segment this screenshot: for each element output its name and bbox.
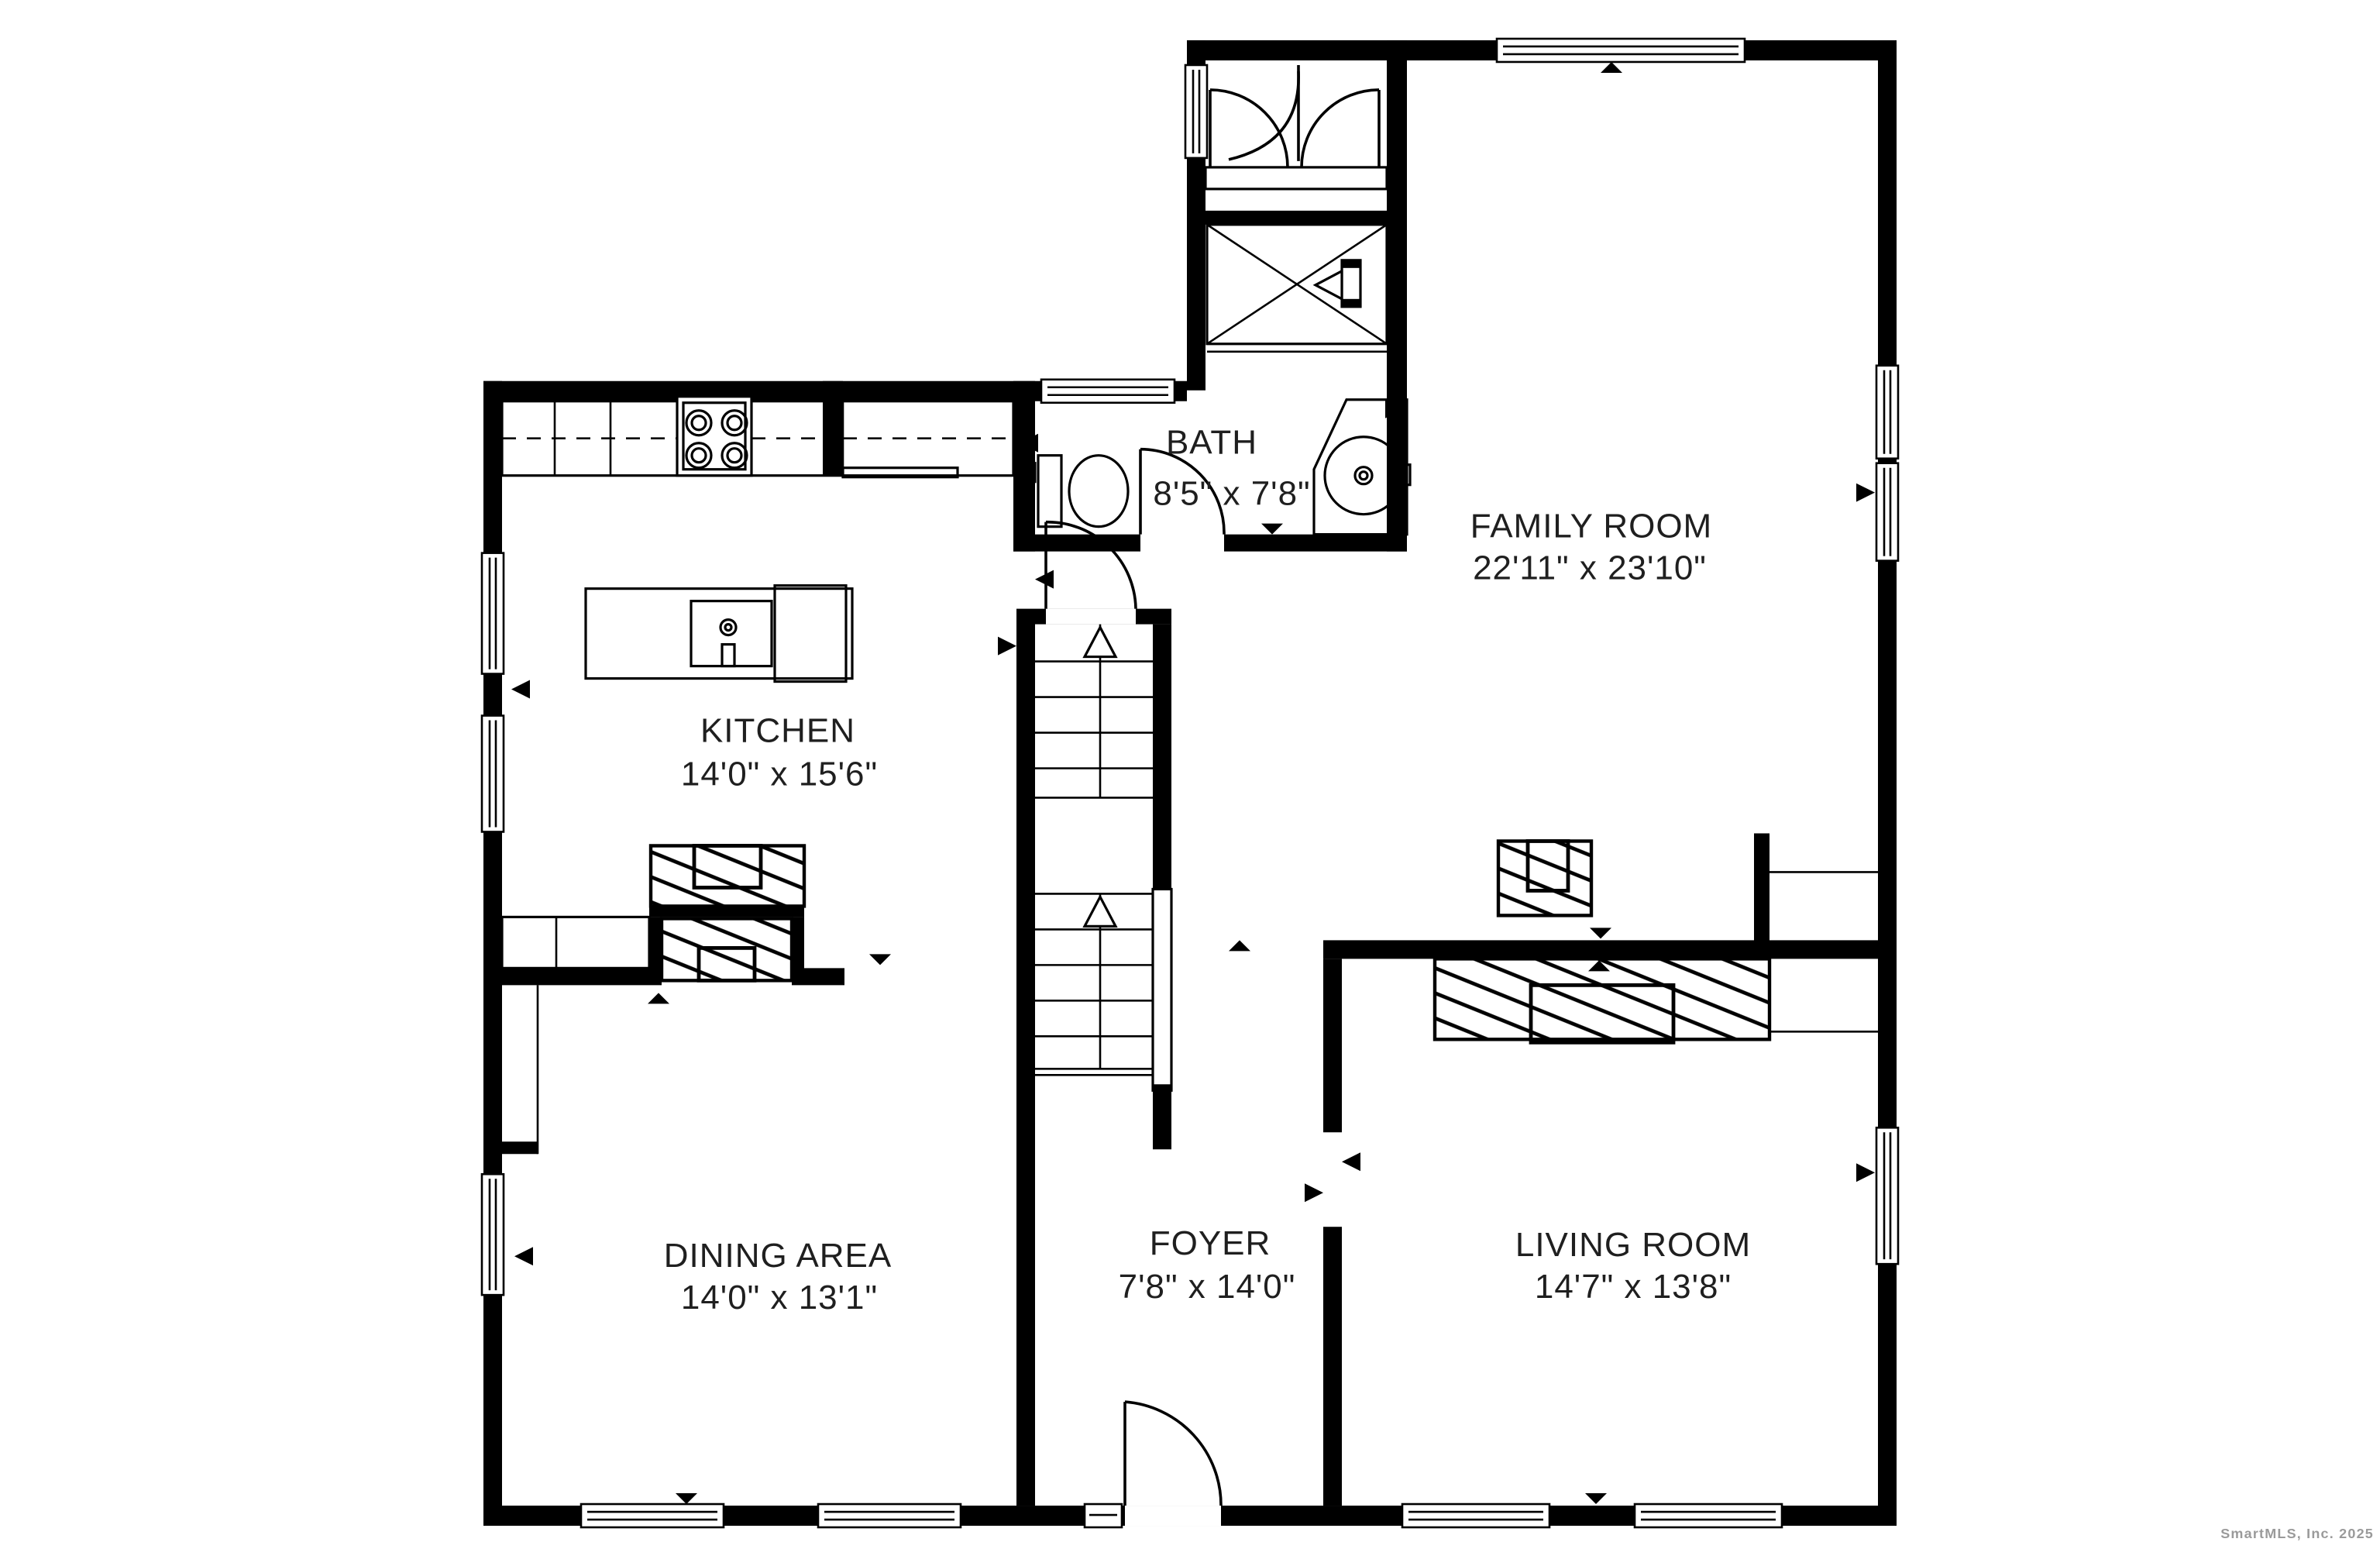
shower-icon <box>1207 225 1387 352</box>
dining-area-dimensions: 14'0" x 13'1" <box>681 1279 878 1317</box>
family-fireplace-icon <box>1498 841 1591 915</box>
stairs-railing <box>1153 889 1171 1090</box>
wall-foyer-west <box>1016 609 1035 1506</box>
kitchen-counter-south <box>502 917 649 968</box>
marker-left-icon <box>514 1247 533 1265</box>
stove-icon <box>677 397 751 476</box>
marker-up-icon <box>648 993 669 1003</box>
stairs-up-arrow-icon <box>1085 897 1116 926</box>
wall-bath-bottom-right <box>1224 535 1407 552</box>
marker-down-icon <box>1261 524 1283 535</box>
dining-fireplace-icon <box>662 918 792 980</box>
wall-kitchen-dining-west <box>502 968 649 985</box>
marker-right-icon <box>998 637 1016 656</box>
kitchen-island <box>586 586 852 682</box>
wall-fireplace-recess-left <box>649 917 662 985</box>
wall-stair-right-lower <box>1153 1084 1171 1149</box>
wall-bath-bottom-left <box>1013 535 1140 552</box>
window-foyer-sidelight <box>1085 1504 1122 1527</box>
front-door <box>1125 1402 1221 1526</box>
foyer-dimensions: 7'8" x 14'0" <box>1119 1268 1296 1306</box>
dining-area-label: DINING AREA <box>664 1237 892 1275</box>
wall-foyer-living-lower <box>1323 1227 1342 1506</box>
marker-down-icon <box>869 954 891 965</box>
window-family-right-1 <box>1876 366 1898 459</box>
living-fireplace-icon <box>1435 959 1770 1042</box>
stairs-lower-flight <box>1035 889 1171 1090</box>
marker-down-icon <box>1590 928 1611 938</box>
living-room-label: LIVING ROOM <box>1515 1226 1751 1264</box>
floor-plan-canvas: BATH 8'5" x 7'8" FAMILY ROOM 22'11" x 23… <box>0 0 2380 1549</box>
window-kitchen-left-2 <box>482 716 504 832</box>
bath-dimensions: 8'5" x 7'8" <box>1153 475 1310 513</box>
closet-shelf <box>1205 167 1387 189</box>
window-kitchen-left-1 <box>482 553 504 674</box>
bath-label: BATH <box>1166 424 1257 462</box>
wall-kitchen-stub <box>823 381 843 476</box>
wall-stair-right-upper <box>1153 625 1171 890</box>
wall-family-stub <box>1754 833 1770 943</box>
kitchen-dimensions: 14'0" x 15'6" <box>681 756 878 793</box>
closet-double-doors <box>1205 65 1387 189</box>
stairs-up-arrow-icon <box>1085 628 1116 657</box>
wall-bath-column-right <box>1387 40 1407 552</box>
foyer-label: FOYER <box>1150 1224 1271 1262</box>
window-dining-left <box>482 1174 504 1295</box>
living-room-dimensions: 14'7" x 13'8" <box>1535 1268 1732 1306</box>
window-family-top <box>1497 39 1745 62</box>
wall-fireplace-recess-right <box>792 917 804 985</box>
marker-left-icon <box>1035 570 1054 589</box>
wall-family-living <box>1323 940 1897 959</box>
marker-left-icon <box>1342 1152 1360 1171</box>
marker-up-icon <box>1229 940 1250 951</box>
kitchen-fireplace-icon <box>651 845 804 906</box>
marker-down-icon <box>1585 1493 1607 1504</box>
window-closet-left <box>1185 65 1207 158</box>
window-living-bottom-1 <box>1402 1504 1549 1527</box>
floor-plan: BATH 8'5" x 7'8" FAMILY ROOM 22'11" x 23… <box>0 0 2380 1549</box>
marker-down-icon <box>676 1493 697 1504</box>
wall-kitchen-dining-east <box>804 968 844 985</box>
window-family-right-2 <box>1876 463 1898 561</box>
marker-right-icon <box>1305 1183 1323 1202</box>
island-dishwasher <box>775 586 846 682</box>
wall-closet-divider <box>1187 211 1387 225</box>
stairs-upper-flight <box>1035 625 1153 798</box>
watermark: SmartMLS, Inc. 2025 <box>2220 1526 2374 1541</box>
staircase <box>1035 625 1171 1091</box>
marker-left-icon <box>511 680 530 699</box>
window-living-right <box>1876 1127 1898 1264</box>
window-living-bottom-2 <box>1635 1504 1782 1527</box>
window-dining-bottom-1 <box>581 1504 724 1527</box>
window-bath-top <box>1041 380 1175 403</box>
wall-right <box>1878 40 1897 1526</box>
family-room-label: FAMILY ROOM <box>1470 508 1712 546</box>
window-dining-bottom-2 <box>818 1504 961 1527</box>
marker-right-icon <box>1856 484 1875 502</box>
family-room-dimensions: 22'11" x 23'10" <box>1473 549 1707 587</box>
toilet-icon <box>1024 456 1128 527</box>
kitchen-label: KITCHEN <box>700 712 855 750</box>
marker-right-icon <box>1856 1163 1875 1182</box>
wall-foyer-living-upper <box>1323 959 1342 1132</box>
marker-up-icon <box>1601 62 1622 73</box>
wall-dining-nook-bottom <box>502 1141 538 1154</box>
